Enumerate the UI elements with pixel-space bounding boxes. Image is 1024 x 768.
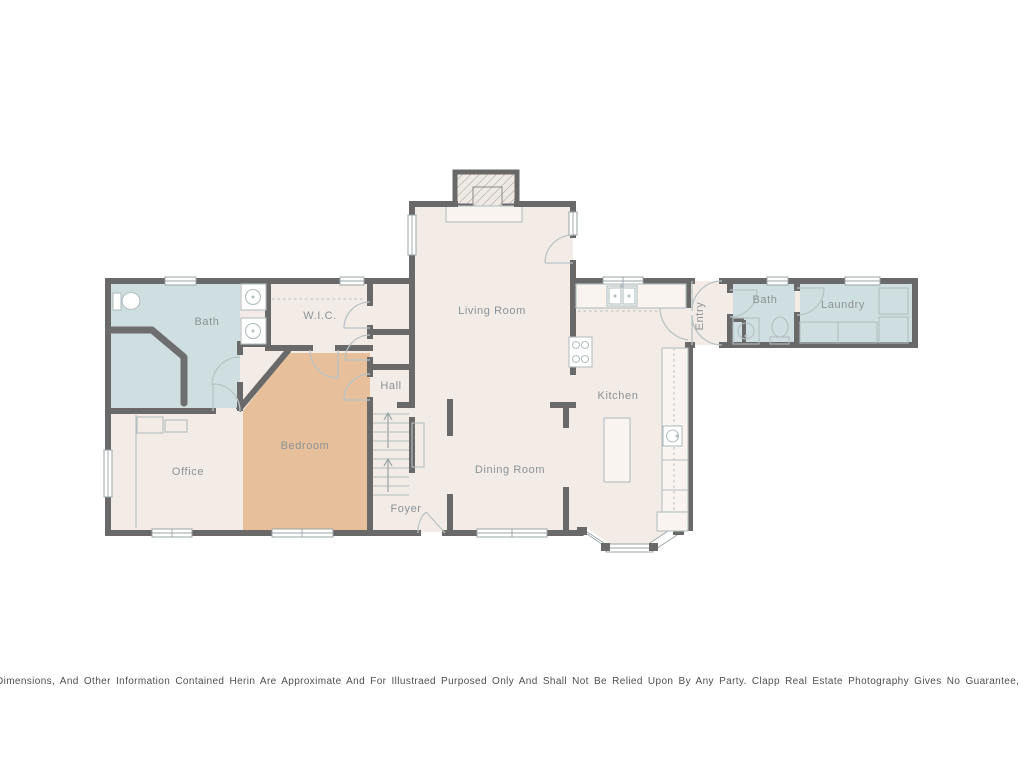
kitchen-island <box>604 418 630 482</box>
room-label-laundry: Laundry <box>821 299 865 311</box>
room-label-bath-left: Bath <box>194 316 219 328</box>
kitchen-sink-icon <box>607 284 637 306</box>
fireplace <box>446 172 522 222</box>
window-dining-bottom <box>477 529 547 537</box>
window-office-bottom <box>152 529 192 537</box>
room-label-kitchen: Kitchen <box>598 390 639 402</box>
window-living-right <box>569 212 577 235</box>
disclaimer-text: Dimensions, And Other Information Contai… <box>0 676 1024 687</box>
window-bath-left <box>165 277 196 285</box>
floor-plan-page: Bath W.I.C. Hall Living Room Entry Bath … <box>0 0 1024 768</box>
window-bedroom-bottom <box>272 529 333 537</box>
kitchen-counter-corner <box>657 512 688 531</box>
window-living-left <box>408 215 416 255</box>
window-wic <box>340 277 364 285</box>
stove-icon <box>569 337 592 367</box>
sink-icon <box>241 318 266 344</box>
room-label-dining: Dining Room <box>475 464 545 476</box>
room-label-foyer: Foyer <box>390 503 421 515</box>
window-laundry <box>845 277 880 285</box>
window-office-left <box>104 450 112 497</box>
room-label-living: Living Room <box>458 305 526 317</box>
window-bath-right <box>767 277 788 285</box>
room-laundry-floor <box>800 284 912 342</box>
room-label-entry: Entry <box>694 302 706 331</box>
toilet-icon <box>113 293 140 311</box>
room-label-wic: W.I.C. <box>303 310 337 322</box>
room-label-bath-right: Bath <box>752 294 777 306</box>
room-label-hall: Hall <box>380 380 401 392</box>
sink-icon <box>241 284 266 310</box>
floor-plan-drawing: Bath W.I.C. Hall Living Room Entry Bath … <box>0 0 1024 768</box>
kitchen-sink2-icon <box>663 426 682 446</box>
room-label-bedroom: Bedroom <box>281 440 330 452</box>
room-label-office: Office <box>172 466 204 478</box>
